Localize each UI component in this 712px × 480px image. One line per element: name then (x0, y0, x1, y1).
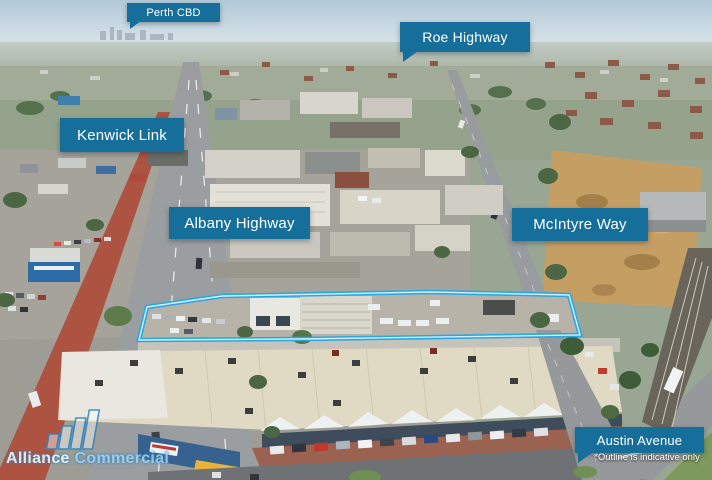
callout-kenwick-link: Kenwick Link (60, 118, 184, 152)
callout-label: Roe Highway (422, 29, 507, 45)
callout-label: Kenwick Link (77, 127, 167, 144)
logo-wordmark: Alliance Commercial (6, 450, 140, 468)
callout-perth-cbd: Perth CBD (127, 3, 220, 22)
callout-pointer (130, 21, 141, 29)
callout-mcintyre-way: McIntyre Way (512, 208, 648, 241)
callout-pointer (403, 51, 418, 62)
alliance-commercial-logo: Alliance Commercial (6, 406, 140, 474)
logo-buildings-icon (40, 406, 102, 452)
callout-label: Perth CBD (146, 7, 200, 19)
callout-roe-highway: Roe Highway (400, 22, 530, 52)
callout-albany-highway: Albany Highway (169, 207, 310, 239)
callout-label: McIntyre Way (533, 216, 627, 233)
callout-label: Austin Avenue (597, 433, 682, 448)
aerial-property-photo: Perth CBD Roe Highway Kenwick Link Alban… (0, 0, 712, 480)
outline-disclaimer: *Outline is indicative only (583, 452, 711, 463)
callout-label: Albany Highway (184, 215, 294, 232)
sky (0, 0, 712, 72)
grey-warehouse-right (640, 192, 706, 232)
callout-austin-avenue: Austin Avenue (575, 427, 704, 453)
